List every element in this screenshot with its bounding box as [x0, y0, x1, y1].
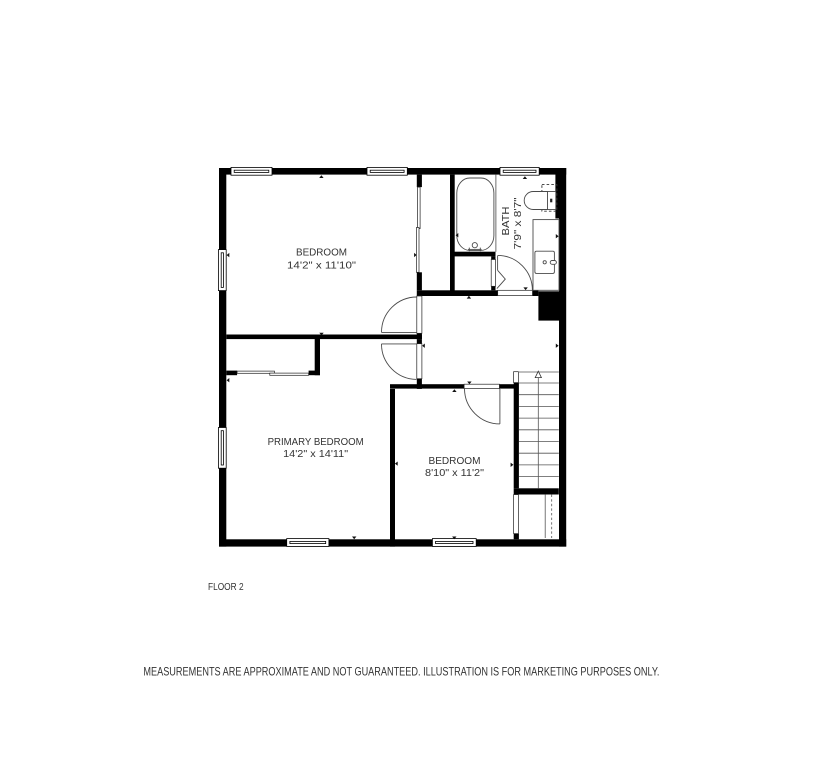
svg-text:FLOOR 2: FLOOR 2 — [208, 582, 244, 593]
svg-text:7'9" x 8'7": 7'9" x 8'7" — [513, 197, 524, 249]
svg-text:PRIMARY BEDROOM: PRIMARY BEDROOM — [268, 437, 364, 448]
svg-text:BEDROOM: BEDROOM — [429, 456, 481, 467]
svg-text:14'2" x 14'11": 14'2" x 14'11" — [283, 449, 348, 460]
svg-text:BATH: BATH — [501, 207, 512, 236]
svg-text:8'10" x 11'2": 8'10" x 11'2" — [425, 468, 484, 479]
svg-text:MEASUREMENTS ARE APPROXIMATE A: MEASUREMENTS ARE APPROXIMATE AND NOT GUA… — [143, 664, 659, 678]
svg-text:BEDROOM: BEDROOM — [296, 248, 347, 259]
svg-text:14'2" x 11'10": 14'2" x 11'10" — [287, 261, 356, 272]
